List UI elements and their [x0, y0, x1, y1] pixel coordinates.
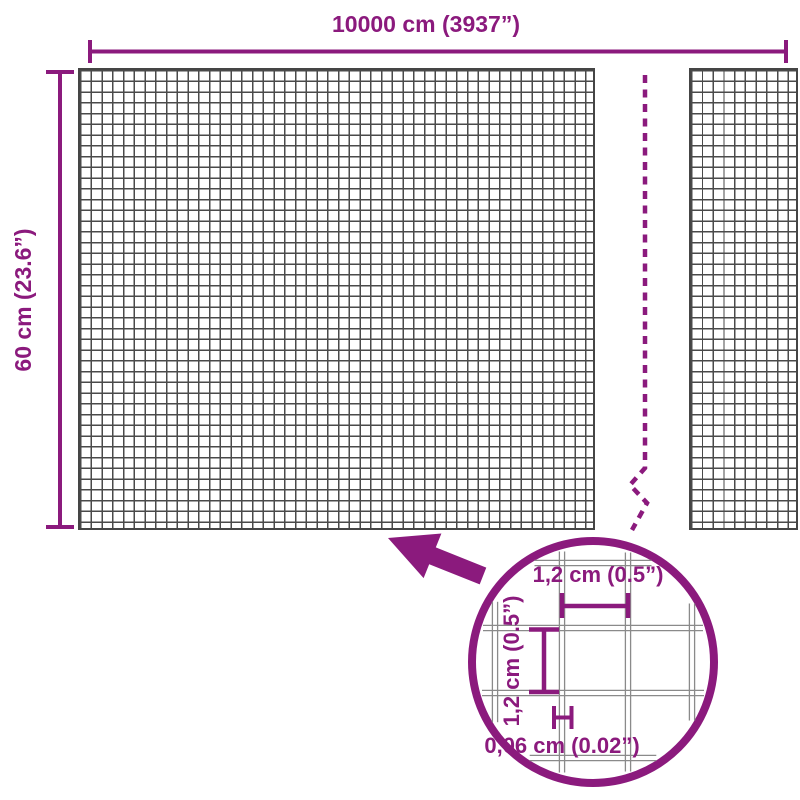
break-line [630, 75, 647, 530]
width-dimension-label: 10000 cm (3937”) [332, 11, 520, 37]
height-dimension-label: 60 cm (23.6”) [10, 228, 36, 371]
magnifier-mesh-height-label: 1,2 cm (0.5”) [499, 596, 524, 727]
zoom-arrow-icon [388, 534, 486, 585]
left-height-dimension: 60 cm (23.6”) [10, 72, 74, 527]
magnifier-mesh-width-label: 1,2 cm (0.5”) [533, 562, 664, 587]
top-width-dimension: 10000 cm (3937”) [90, 11, 786, 63]
product-dimension-diagram: 10000 cm (3937”) 60 cm (23.6”) [0, 0, 800, 800]
magnifier-wire-thickness-label: 0,06 cm (0.02”) [484, 733, 639, 758]
magnifier: 1,2 cm (0.5”) 1,2 cm (0.5”) 0,06 cm (0.0… [472, 541, 714, 783]
annotation-overlay: 10000 cm (3937”) 60 cm (23.6”) [0, 0, 800, 800]
